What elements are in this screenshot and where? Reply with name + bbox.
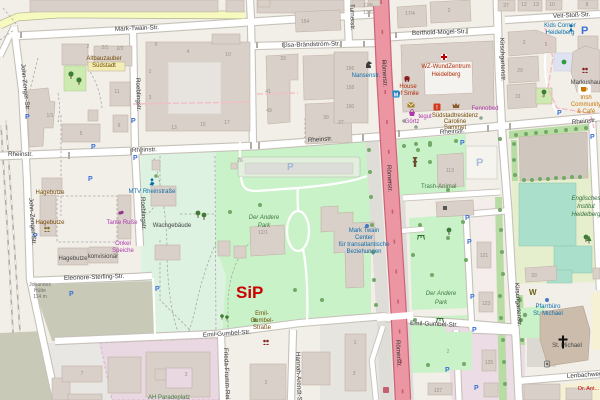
svg-text:7: 7 xyxy=(81,371,84,377)
svg-text:13: 13 xyxy=(171,125,177,131)
svg-text:121: 121 xyxy=(480,253,489,259)
svg-text:W: W xyxy=(529,288,537,297)
svg-text:1: 1 xyxy=(354,340,357,346)
svg-text:P: P xyxy=(133,155,138,162)
svg-text:Der Andere: Der Andere xyxy=(249,215,280,221)
svg-text:P: P xyxy=(470,294,475,301)
svg-text:Rheinstr.: Rheinstr. xyxy=(132,146,157,154)
svg-text:Dr. Ant...: Dr. Ant... xyxy=(578,386,600,392)
svg-text:Center: Center xyxy=(355,235,373,241)
svg-text:Hagebutze: Hagebutze xyxy=(35,220,65,226)
svg-text:125: 125 xyxy=(485,360,494,366)
svg-text:158: 158 xyxy=(346,85,355,91)
svg-text:& Café: & Café xyxy=(577,109,596,115)
svg-text:Institut: Institut xyxy=(577,204,595,210)
svg-text:2/2: 2/2 xyxy=(117,46,124,52)
svg-text:tegut: tegut xyxy=(418,114,432,120)
svg-text:113: 113 xyxy=(446,168,454,174)
svg-text:P: P xyxy=(91,144,96,151)
svg-text:9: 9 xyxy=(118,123,121,129)
svg-text:P: P xyxy=(476,157,483,169)
svg-text:P: P xyxy=(590,134,595,141)
svg-text:P: P xyxy=(474,385,479,392)
svg-text:2: 2 xyxy=(265,380,268,386)
svg-text:3: 3 xyxy=(149,95,152,101)
svg-text:4: 4 xyxy=(542,94,545,100)
svg-text:Park: Park xyxy=(435,300,448,306)
svg-text:Wachgebäude: Wachgebäude xyxy=(153,223,192,229)
svg-text:Englisches: Englisches xyxy=(571,196,600,202)
svg-text:Heidelberg: Heidelberg xyxy=(431,72,460,78)
svg-text:5: 5 xyxy=(545,42,548,48)
svg-text:St. Michael: St. Michael xyxy=(533,311,563,317)
svg-text:3: 3 xyxy=(523,40,526,46)
svg-text:156: 156 xyxy=(346,66,355,72)
svg-text:Südstadt: Südstadt xyxy=(92,63,116,69)
svg-text:154: 154 xyxy=(301,19,310,25)
svg-text:15: 15 xyxy=(200,122,206,128)
svg-text:33: 33 xyxy=(280,56,286,62)
svg-text:WZ-WundZentrum: WZ-WundZentrum xyxy=(421,64,470,70)
svg-text:Gumbel-: Gumbel- xyxy=(250,318,273,324)
svg-text:P: P xyxy=(465,215,470,222)
svg-text:Pfarrbüro: Pfarrbüro xyxy=(535,304,561,310)
svg-text:P: P xyxy=(69,291,74,298)
svg-text:Roeblingstr.: Roeblingstr. xyxy=(139,197,147,231)
svg-text:26: 26 xyxy=(237,158,243,164)
svg-text:Römerstr.: Römerstr. xyxy=(394,340,402,368)
svg-text:43: 43 xyxy=(266,108,272,114)
svg-text:33: 33 xyxy=(531,273,537,279)
svg-text:P: P xyxy=(467,239,472,246)
svg-text:11: 11 xyxy=(114,89,119,95)
svg-text:1/1: 1/1 xyxy=(47,113,54,119)
svg-text:Roeblingstr.: Roeblingstr. xyxy=(134,78,142,112)
svg-text:SiP: SiP xyxy=(236,283,263,302)
svg-text:Görtz: Görtz xyxy=(405,119,420,125)
svg-text:Fennobed: Fennobed xyxy=(471,106,498,112)
svg-text:Hagebutze: Hagebutze xyxy=(35,190,65,196)
svg-text:39: 39 xyxy=(323,115,329,121)
svg-text:Park: Park xyxy=(258,223,271,229)
svg-text:3: 3 xyxy=(353,371,356,377)
svg-text:of Smile: of Smile xyxy=(397,91,419,97)
svg-text:Irish: Irish xyxy=(580,95,591,101)
svg-text:M: M xyxy=(394,92,399,98)
svg-text:13: 13 xyxy=(533,2,539,8)
svg-text:P: P xyxy=(581,25,588,37)
svg-text:Emil-: Emil- xyxy=(255,311,269,317)
svg-text:Tante Ruße: Tante Ruße xyxy=(106,220,138,226)
svg-text:P: P xyxy=(460,140,465,147)
svg-text:4: 4 xyxy=(187,49,190,55)
svg-text:1: 1 xyxy=(149,69,152,75)
svg-text:Nansenstr.: Nansenstr. xyxy=(352,73,381,79)
svg-text:127: 127 xyxy=(434,388,443,394)
svg-text:2/1: 2/1 xyxy=(102,45,109,51)
svg-text:2: 2 xyxy=(87,44,90,50)
svg-text:2: 2 xyxy=(447,349,450,355)
svg-text:12/5: 12/5 xyxy=(363,3,373,9)
svg-text:12/1: 12/1 xyxy=(258,230,268,236)
svg-text:Community: Community xyxy=(571,102,600,108)
svg-text:MTV Rheinstraße: MTV Rheinstraße xyxy=(128,189,176,195)
svg-text:P: P xyxy=(287,162,294,173)
svg-text:29: 29 xyxy=(517,68,523,74)
svg-text:3: 3 xyxy=(185,372,188,378)
svg-text:Römerstr.: Römerstr. xyxy=(380,60,388,88)
svg-text:P: P xyxy=(557,110,562,117)
svg-text:P: P xyxy=(88,176,93,183)
svg-text:Sammet: Sammet xyxy=(444,125,467,131)
svg-text:AH Paradeplatz: AH Paradeplatz xyxy=(148,395,190,400)
svg-text:P: P xyxy=(25,114,30,121)
svg-text:6: 6 xyxy=(155,42,158,48)
svg-text:Onkel: Onkel xyxy=(115,241,131,247)
svg-text:17/4: 17/4 xyxy=(405,11,415,17)
svg-text:P: P xyxy=(131,118,136,125)
svg-text:Mark Twain: Mark Twain xyxy=(349,228,380,234)
svg-text:123: 123 xyxy=(482,301,491,307)
svg-text:31: 31 xyxy=(515,94,521,100)
svg-text:Heidelberg: Heidelberg xyxy=(571,212,600,218)
svg-text:Trash-Animal: Trash-Animal xyxy=(421,184,456,190)
svg-text:konvisionär: konvisionär xyxy=(88,254,118,260)
svg-text:27: 27 xyxy=(338,120,344,126)
svg-text:5: 5 xyxy=(80,131,83,137)
svg-text:12: 12 xyxy=(521,2,527,8)
svg-text:P: P xyxy=(472,327,477,334)
svg-text:8: 8 xyxy=(586,2,589,8)
svg-text:Rheinstr.: Rheinstr. xyxy=(8,151,33,158)
svg-text:Römerstr.: Römerstr. xyxy=(385,165,393,193)
svg-text:17: 17 xyxy=(224,120,230,126)
svg-text:P: P xyxy=(445,367,450,374)
svg-text:P: P xyxy=(155,286,160,293)
svg-text:27: 27 xyxy=(503,3,509,9)
svg-text:160: 160 xyxy=(346,104,355,110)
svg-text:10: 10 xyxy=(225,52,231,58)
svg-text:Turnerstr.: Turnerstr. xyxy=(348,4,356,31)
svg-text:Hagebutze: Hagebutze xyxy=(58,256,88,262)
svg-text:Straße: Straße xyxy=(253,325,272,331)
svg-text:114 m: 114 m xyxy=(33,294,47,300)
svg-text:41: 41 xyxy=(265,89,271,95)
svg-text:St. Michael: St. Michael xyxy=(552,343,582,349)
svg-text:10: 10 xyxy=(549,2,555,8)
svg-text:Altbauzauber: Altbauzauber xyxy=(86,56,121,62)
svg-text:House: House xyxy=(399,84,417,90)
svg-text:Der Andere: Der Andere xyxy=(426,291,457,297)
svg-text:2: 2 xyxy=(448,8,451,14)
svg-text:Beziehungen: Beziehungen xyxy=(346,249,381,255)
svg-text:für transatlantische: für transatlantische xyxy=(339,242,390,248)
